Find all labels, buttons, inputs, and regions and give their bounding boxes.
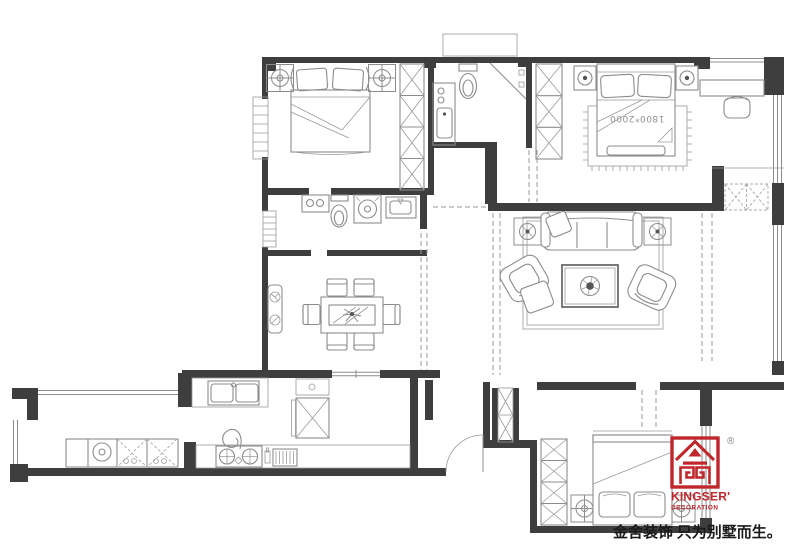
- bottle: [265, 448, 270, 463]
- bedroom1: [267, 64, 425, 190]
- brand-slogan: 金舍装饰 只为别墅而生。: [612, 523, 782, 541]
- shower: [490, 63, 526, 99]
- refrigerator: [292, 398, 330, 438]
- toilet: [331, 195, 348, 227]
- kingser-emblem-icon: [672, 438, 718, 487]
- dining-chair: [327, 279, 347, 296]
- duct-shaft: [498, 388, 513, 442]
- kingser-logo: ® KINGSER' DECORATION: [671, 436, 736, 512]
- master-bedroom: 1800*2000: [536, 64, 768, 210]
- floorplan-page: 1800*2000: [0, 0, 800, 558]
- armchair: [625, 262, 679, 313]
- kitchen: [192, 378, 410, 468]
- dining-chair: [354, 333, 374, 350]
- side-table-with-plant: [514, 218, 541, 245]
- brand-name: KINGSER': [671, 490, 730, 504]
- dining-chair: [327, 333, 347, 350]
- desk: [700, 80, 764, 118]
- living-room: [497, 211, 679, 329]
- dining-chair: [383, 305, 400, 325]
- double-bed: [597, 64, 675, 156]
- floorplan-canvas: 1800*2000: [0, 0, 800, 558]
- wardrobe: [536, 64, 562, 159]
- desk-chair: [724, 98, 750, 118]
- storage-cabinet: [725, 184, 768, 210]
- wardrobe: [541, 439, 567, 525]
- washing-machine: [93, 443, 111, 461]
- double-bed: [291, 67, 370, 155]
- nightstand-lamp: [676, 66, 698, 90]
- bathroom-top: [433, 63, 526, 145]
- dining-chair: [303, 305, 320, 325]
- hatched-window: [263, 211, 276, 247]
- sideboard-with-plants: [268, 285, 282, 333]
- laundry-strip: [302, 195, 416, 227]
- registered-mark: ®: [726, 436, 736, 447]
- washing-machine: [354, 195, 381, 223]
- sofa: [541, 211, 642, 250]
- range-rack: [273, 449, 297, 466]
- nightstand-lamp: [574, 66, 596, 90]
- wall-cabinet: [296, 379, 329, 395]
- laundry-counter: [302, 195, 329, 212]
- toilet: [459, 64, 477, 99]
- vanity-washbasin: [433, 83, 455, 145]
- side-table-with-plant: [644, 218, 671, 245]
- dining-chair: [354, 279, 374, 296]
- wardrobe: [400, 64, 424, 190]
- gas-stove: [216, 446, 262, 467]
- ceiling-light-icon: [369, 65, 396, 92]
- brand-subtitle: DECORATION: [671, 505, 718, 512]
- bed-size-label: 1800*2000: [610, 113, 665, 123]
- dining-room: [268, 279, 400, 350]
- entry-door-swing: [446, 435, 483, 472]
- counter: [192, 378, 268, 407]
- balcony: [66, 439, 178, 467]
- washbasin: [386, 197, 416, 218]
- dining-table: [321, 297, 383, 333]
- double-bed: [593, 431, 672, 525]
- hatched-window: [253, 97, 268, 159]
- kitchen-sink: [208, 381, 259, 405]
- coffee-table-with-plant: [562, 265, 618, 307]
